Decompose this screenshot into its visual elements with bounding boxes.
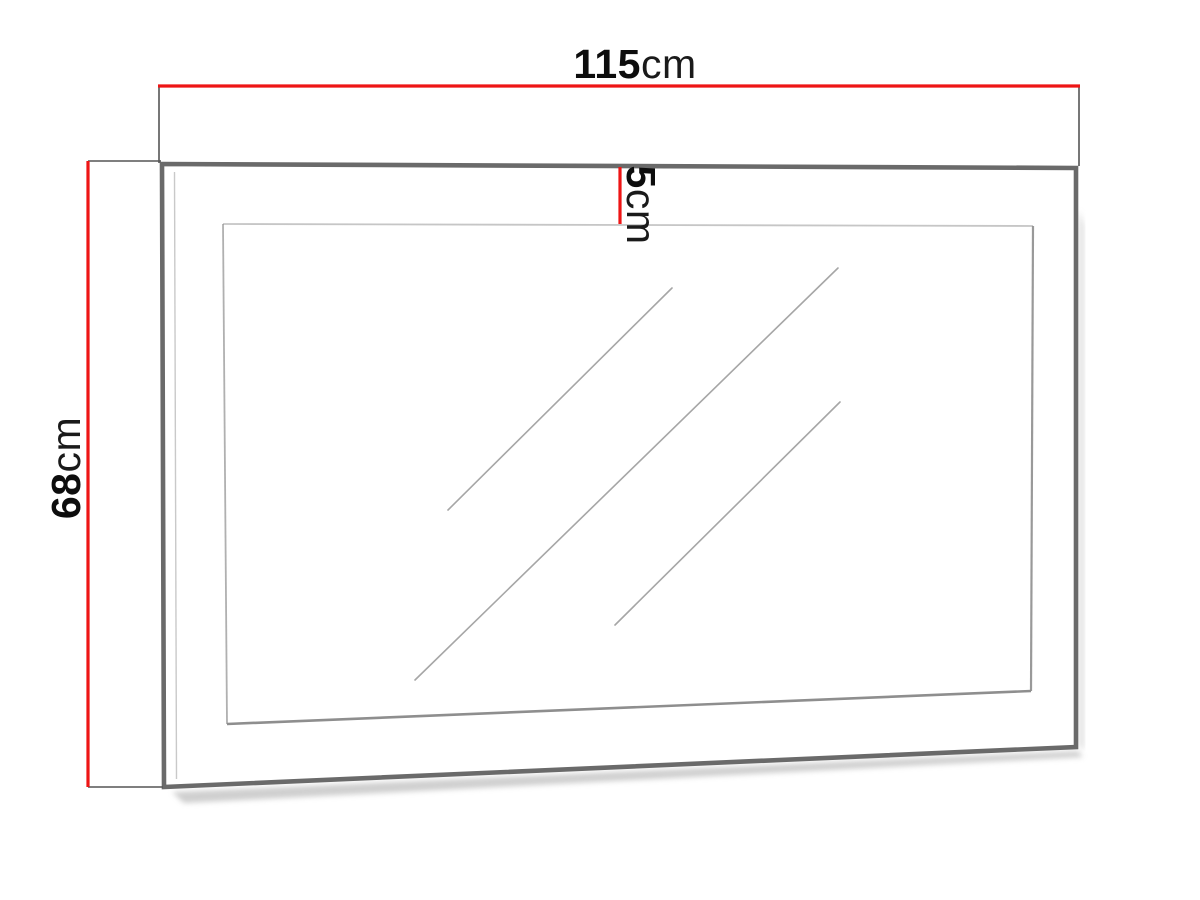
dimension-diagram: 115cm 68cm 5cm [0,0,1200,900]
width-value: 115 [573,44,641,85]
height-unit: cm [46,417,87,473]
depth-value: 5 [621,166,662,189]
width-dimension-label: 115cm [485,42,785,86]
mirror-drawing [0,0,1200,900]
depth-unit: cm [621,189,662,245]
height-dimension-label: 68cm [46,393,86,543]
frame-right-shadow [1079,210,1084,750]
width-unit: cm [641,44,697,85]
depth-dimension-label: 5cm [621,130,661,280]
height-value: 68 [46,473,87,520]
mirror-glass [223,224,1033,724]
